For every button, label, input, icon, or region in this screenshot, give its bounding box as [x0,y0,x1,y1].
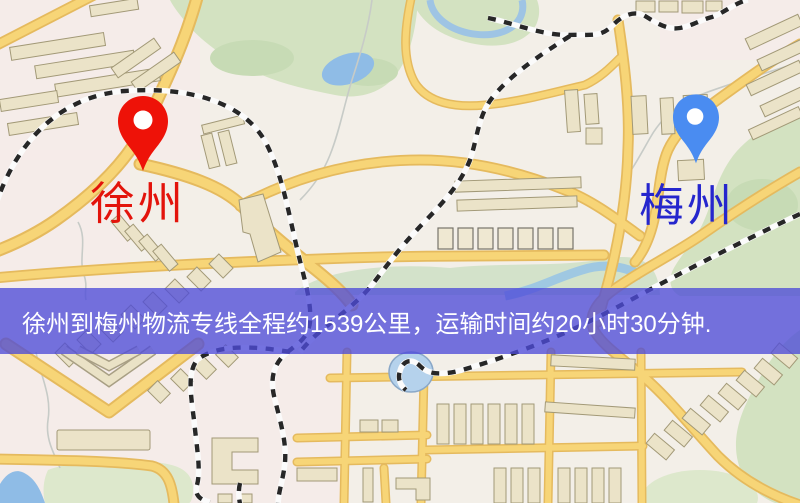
banner-text: 徐州到梅州物流专线全程约1539公里，运输时间约20小时30分钟. [0,304,711,339]
info-banner: 徐州到梅州物流专线全程约1539公里，运输时间约20小时30分钟. [0,288,800,354]
map-background: 徐州 梅州 [0,0,800,503]
destination-marker-icon[interactable] [673,94,719,163]
origin-label: 徐州 [90,178,186,229]
map-canvas: 徐州 梅州 徐州到梅州物流专线全程约1539公里，运输时间约20小时30分钟. [0,0,800,503]
destination-label: 梅州 [639,180,735,231]
